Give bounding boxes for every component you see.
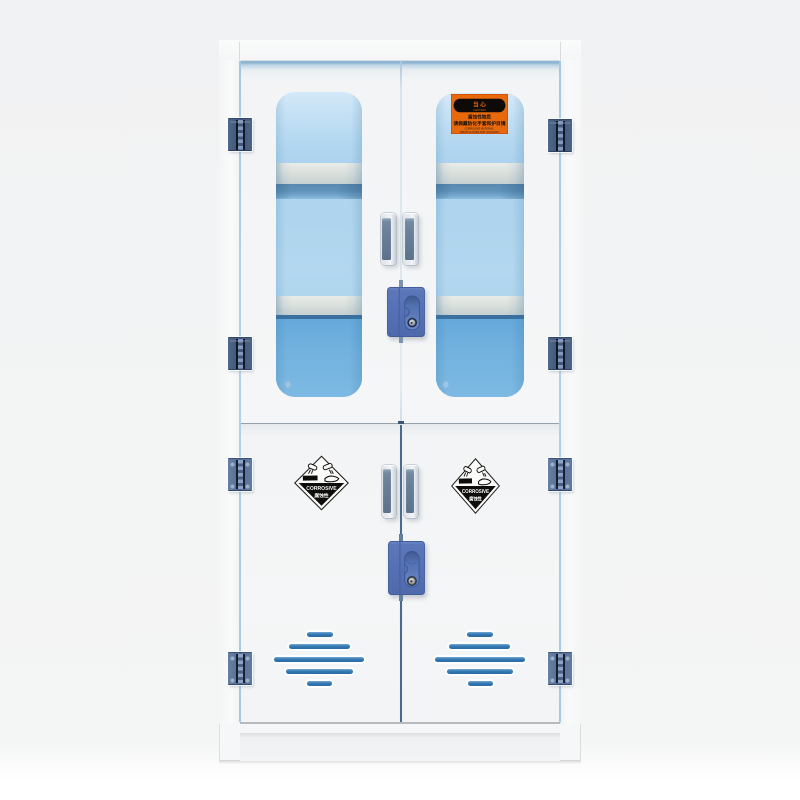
svg-text:CORROSIVE MATERIAL,: CORROSIVE MATERIAL,: [465, 127, 495, 131]
svg-text:腐蚀性物质: 腐蚀性物质: [468, 114, 491, 121]
svg-text:WEAR GLOVES AND GOGGLES: WEAR GLOVES AND GOGGLES: [460, 130, 499, 134]
svg-text:CAUTION: CAUTION: [473, 108, 485, 112]
svg-text:当 心: 当 心: [473, 101, 486, 109]
svg-text:请佩戴防化手套和护目镜: 请佩戴防化手套和护目镜: [454, 120, 507, 127]
